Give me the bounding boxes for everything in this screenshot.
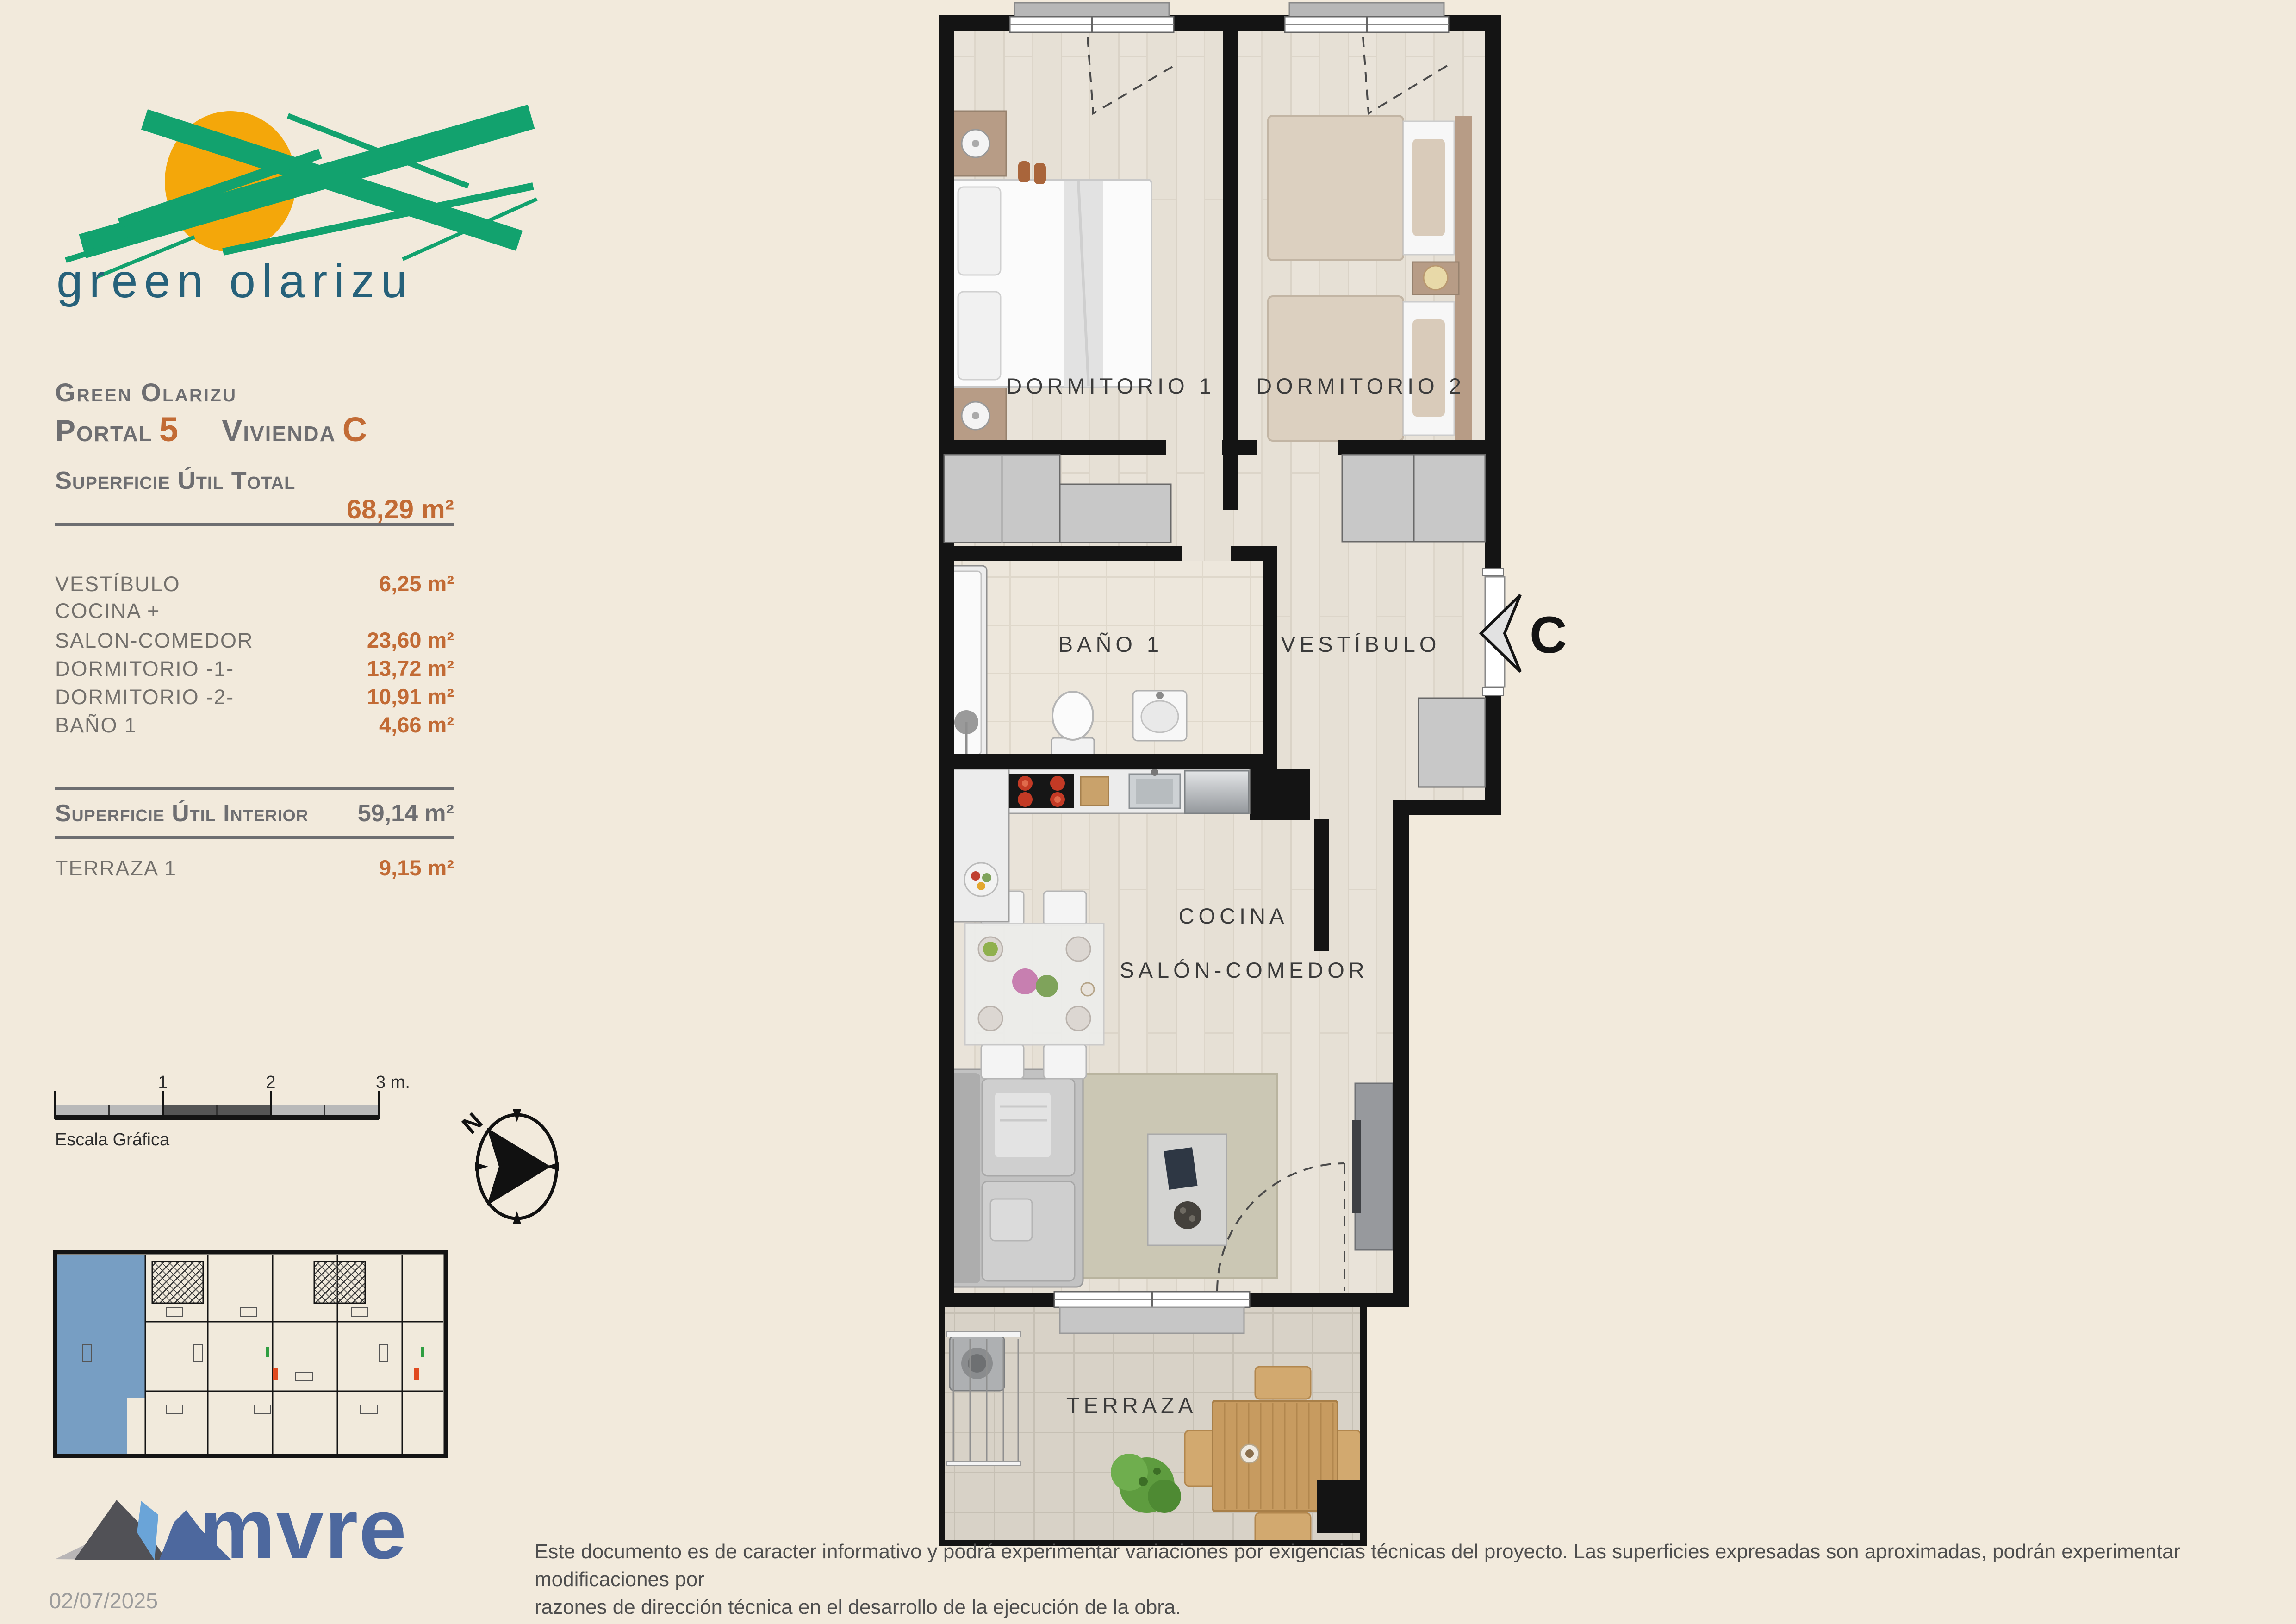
terrace-label: TERRAZA 1	[55, 856, 177, 881]
scale-tick-1: 1	[158, 1073, 168, 1092]
room-label-salon-comedor: SALÓN-COMEDOR	[1120, 958, 1368, 982]
table-row: DORMITORIO -2- 10,91 m²	[55, 684, 454, 712]
row-value: 4,66 m²	[379, 712, 454, 737]
room-label-dormitorio-2: DORMITORIO 2	[1256, 374, 1465, 398]
coffee-table	[1148, 1134, 1226, 1245]
room-label-dormitorio-1: DORMITORIO 1	[1006, 374, 1215, 398]
row-value: 6,25 m²	[379, 571, 454, 596]
compass-north-label: N	[457, 1108, 488, 1139]
interior-surface-row: Superficie Útil Interior 59,14 m²	[55, 800, 454, 827]
room-label-terraza: TERRAZA	[1066, 1393, 1197, 1418]
document-date: 02/07/2025	[49, 1588, 158, 1613]
sofa	[944, 1069, 1083, 1287]
room-label-bano-1: BAÑO 1	[1058, 632, 1163, 656]
scale-tick-2: 2	[266, 1073, 275, 1092]
portal: Portal5	[55, 410, 179, 449]
row-value: 10,91 m²	[367, 684, 454, 709]
room-label-cocina: COCINA	[1179, 904, 1288, 928]
unit-letter: C	[1530, 606, 1567, 664]
window-dorm1	[1010, 3, 1174, 32]
table-row: SALON-COMEDOR 23,60 m²	[55, 627, 454, 656]
table-row: DORMITORIO -1- 13,72 m²	[55, 656, 454, 684]
floor-plan: DORMITORIO 1 DORMITORIO 2 BAÑO 1 VESTÍBU…	[939, 3, 1567, 1546]
floorplan-sheet: green olarizu 1 2 3 m. Escala Gráfica	[0, 0, 2296, 1624]
vivienda: ViviendaC	[222, 410, 368, 449]
bathroom-floor	[954, 561, 1263, 754]
terrace-window	[1054, 1292, 1250, 1333]
interior-value: 59,14 m²	[358, 800, 454, 827]
scale-bar-label: Escala Gráfica	[55, 1130, 170, 1149]
toilet	[1052, 692, 1094, 762]
divider	[55, 836, 454, 839]
tv-unit	[1352, 1083, 1393, 1250]
divider	[55, 523, 454, 526]
logo-brand-text: green olarizu	[56, 255, 414, 307]
project-title: Green Olarizu	[55, 377, 454, 407]
fruit-bowl	[964, 863, 998, 896]
appliance	[1185, 771, 1249, 813]
vivienda-letter: C	[342, 410, 368, 449]
green-olarizu-logo: green olarizu	[56, 111, 537, 307]
disclaimer-line-1: Este documento es de caracter informativ…	[535, 1538, 2270, 1593]
total-surface-label: Superficie Útil Total	[55, 466, 454, 495]
total-surface-value: 68,29 m²	[55, 494, 454, 525]
cutting-board	[1081, 777, 1108, 806]
room-label-vestibulo: VESTÍBULO	[1281, 632, 1441, 656]
row-value: 13,72 m²	[367, 656, 454, 681]
scale-tick-3: 3 m.	[376, 1073, 410, 1092]
stair-core-icon	[152, 1262, 203, 1303]
window-dorm2	[1285, 3, 1449, 32]
vivienda-label: Vivienda	[222, 413, 336, 448]
hob-icon	[1009, 774, 1074, 808]
row-label: COCINA +	[55, 599, 160, 623]
interior-label: Superficie Útil Interior	[55, 800, 309, 827]
disclaimer: Este documento es de caracter informativ…	[535, 1538, 2270, 1621]
logo-brush-x-icon	[66, 116, 537, 277]
terrace-surface-row: TERRAZA 1 9,15 m²	[55, 855, 454, 881]
row-label: BAÑO 1	[55, 713, 137, 737]
divider	[55, 787, 454, 790]
row-label: VESTÍBULO	[55, 572, 180, 596]
row-label: SALON-COMEDOR	[55, 629, 254, 653]
mvre-logo: mvre	[55, 1481, 407, 1577]
key-plan	[55, 1252, 446, 1456]
table-row: VESTÍBULO 6,25 m²	[55, 571, 454, 599]
terrace-value: 9,15 m²	[379, 855, 454, 881]
key-plan-highlighted-unit	[57, 1255, 145, 1398]
portal-number: 5	[159, 410, 179, 449]
bathroom-sink	[1133, 691, 1187, 741]
table-row: BAÑO 1 4,66 m²	[55, 712, 454, 740]
row-value: 23,60 m²	[367, 627, 454, 653]
mvre-brand-text: mvre	[199, 1481, 407, 1577]
disclaimer-line-2: razones de dirección técnica en el desar…	[535, 1593, 2270, 1621]
scale-bar: 1 2 3 m. Escala Gráfica	[54, 1073, 410, 1149]
portal-label: Portal	[55, 413, 153, 448]
row-label: DORMITORIO -2-	[55, 685, 234, 709]
row-label: DORMITORIO -1-	[55, 657, 234, 681]
unit-line: Portal5 ViviendaC	[55, 410, 454, 449]
north-compass-icon: N	[457, 1108, 559, 1224]
table-row: COCINA +	[55, 599, 454, 627]
surface-table: VESTÍBULO 6,25 m² COCINA + SALON-COMEDOR…	[55, 571, 454, 740]
stair-core-icon	[314, 1262, 365, 1303]
